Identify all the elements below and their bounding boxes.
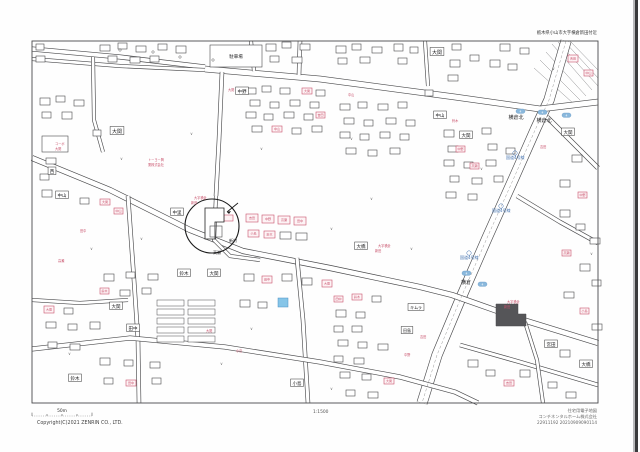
svg-text:大字横倉: 大字横倉 [507,299,521,304]
svg-text:中野: 中野 [579,192,585,197]
map-frame [32,41,598,403]
svg-text:横倉北: 横倉北 [536,117,551,124]
svg-text:鈴木: 鈴木 [180,270,189,277]
svg-text:大関: 大関 [432,49,442,56]
svg-text:中野: 中野 [404,352,411,357]
svg-text:大関: 大関 [112,303,121,310]
svg-text:田中: 田中 [80,228,86,233]
svg-text:トーヨー興: トーヨー興 [148,157,165,162]
svg-text:∨: ∨ [350,136,353,141]
copyright-text: Copyright(C)2021 ZENRIN CO., LTD. [37,420,123,426]
scanned-map-page: 大関中山吉田中野高瀬田中小島鈴木大関吉田中山鈴木田中大関吉田中野高瀬小島大関田中… [0,0,640,452]
svg-text:田中: 田中 [297,218,303,223]
svg-text:大関: 大関 [228,87,234,92]
svg-text:大橋: 大橋 [582,361,591,368]
svg-text:駐車場: 駐車場 [229,53,243,60]
footer-print-title: 住宅用電子地図 [568,407,597,414]
svg-text:田島: 田島 [403,327,411,333]
scale-ratio: 1:1500 [313,409,329,415]
svg-text:大橋: 大橋 [357,243,366,250]
svg-text:大関: 大関 [112,128,122,135]
building-footprints: 大関中山吉田中野高瀬田中小島鈴木大関吉田中山鈴木田中大関吉田中野高瀬小島大関田中… [36,42,602,398]
svg-text:4: 4 [542,111,544,115]
svg-text:∨: ∨ [410,246,413,251]
svg-text:小島: 小島 [293,380,302,387]
svg-text:鈴木: 鈴木 [354,294,360,299]
svg-text:高瀬: 高瀬 [563,250,569,255]
residential-map-canvas: 大関中山吉田中野高瀬田中小島鈴木大関吉田中山鈴木田中大関吉田中野高瀬小島大関田中… [0,0,640,452]
svg-text:小島: 小島 [236,348,243,353]
svg-text:小島: 小島 [581,308,587,313]
svg-text:新田: 新田 [191,200,197,205]
svg-text:大字横倉: 大字横倉 [378,243,392,248]
svg-text:鈴木: 鈴木 [101,288,107,293]
svg-text:吉田: 吉田 [317,112,323,117]
corner-location-note: 栃木県小山市大字横倉新田付近 [537,29,598,36]
svg-text:田中: 田中 [129,325,138,332]
svg-text:高瀬: 高瀬 [471,163,477,168]
svg-text:中山: 中山 [115,208,121,213]
svg-text:吉田: 吉田 [420,334,426,339]
svg-text:田中: 田中 [335,296,341,301]
svg-text:中山: 中山 [348,92,354,97]
scale-bar-label: 50m [57,408,67,414]
svg-text:∨: ∨ [552,66,555,71]
svg-text:∨: ∨ [220,361,223,366]
svg-text:業株式会社: 業株式会社 [148,162,165,167]
svg-text:鈴木: 鈴木 [452,118,459,123]
svg-text:新田: 新田 [504,304,510,309]
page-edge-shadow [635,0,638,452]
svg-text:中山: 中山 [436,112,445,119]
svg-text:4: 4 [466,272,468,276]
svg-text:∨: ∨ [90,246,93,251]
svg-text:高瀬: 高瀬 [213,249,221,255]
svg-text:∨: ∨ [120,156,123,161]
svg-text:大関: 大関 [304,88,310,93]
svg-text:∨: ∨ [250,326,253,331]
svg-text:∨: ∨ [260,146,263,151]
svg-text:大関: 大関 [564,129,573,136]
svg-text:吉田: 吉田 [570,56,576,61]
svg-text:小島: 小島 [250,231,256,236]
svg-text:∨: ∨ [370,196,373,201]
svg-text:国道4号線: 国道4号線 [460,254,479,260]
svg-text:大関: 大関 [55,146,61,151]
svg-text:∨: ∨ [68,351,71,356]
svg-text:宮田: 宮田 [547,341,556,348]
svg-text:中山: 中山 [274,126,280,131]
svg-text:中野: 中野 [238,88,247,95]
svg-text:大関: 大関 [462,132,471,139]
svg-text:鈴木: 鈴木 [266,232,272,237]
svg-text:大関: 大関 [46,307,52,312]
svg-text:∨: ∨ [590,251,593,256]
svg-text:4: 4 [482,283,484,287]
svg-text:鈴木: 鈴木 [71,375,80,382]
footer-company-name: コンチネンタルホーム株式会社 [538,413,597,420]
svg-text:4: 4 [520,110,522,114]
svg-text:田中: 田中 [128,380,134,385]
svg-text:吉田: 吉田 [249,215,255,220]
svg-text:西: 西 [50,169,55,175]
svg-text:横倉: 横倉 [461,279,471,286]
svg-text:中野: 中野 [457,146,463,151]
svg-text:大字横倉: 大字横倉 [194,195,208,200]
svg-text:中山: 中山 [58,192,67,199]
svg-text:高瀬: 高瀬 [281,217,287,222]
footer-print-id: 22911192 20210909090114 [537,420,597,425]
svg-text:吉田: 吉田 [540,144,546,149]
svg-text:中野: 中野 [265,216,271,221]
svg-text:中里: 中里 [173,209,182,216]
svg-text:大関: 大関 [386,378,392,383]
svg-text:大関: 大関 [210,270,219,277]
svg-text:∨: ∨ [330,226,333,231]
svg-text:コーポ: コーポ [55,141,65,146]
svg-text:大関: 大関 [102,199,108,204]
svg-text:キムラ: キムラ [410,304,422,310]
svg-text:4: 4 [566,114,568,118]
svg-text:新村: 新村 [229,237,237,243]
svg-text:∨: ∨ [480,166,483,171]
road-network [32,41,598,403]
svg-text:中山: 中山 [585,70,591,75]
svg-text:横倉北: 横倉北 [508,114,523,121]
svg-text:高瀬: 高瀬 [58,258,65,263]
svg-text:∨: ∨ [330,386,333,391]
svg-text:新田: 新田 [375,248,381,253]
svg-text:∨: ∨ [190,131,193,136]
svg-text:大関: 大関 [206,328,212,333]
svg-text:国道4号線: 国道4号線 [506,154,525,160]
svg-text:∨: ∨ [140,236,143,241]
svg-text:田中: 田中 [264,277,270,282]
svg-text:大関: 大関 [324,281,330,286]
svg-text:国道4号線: 国道4号線 [492,207,511,213]
svg-text:吉田: 吉田 [506,380,512,385]
